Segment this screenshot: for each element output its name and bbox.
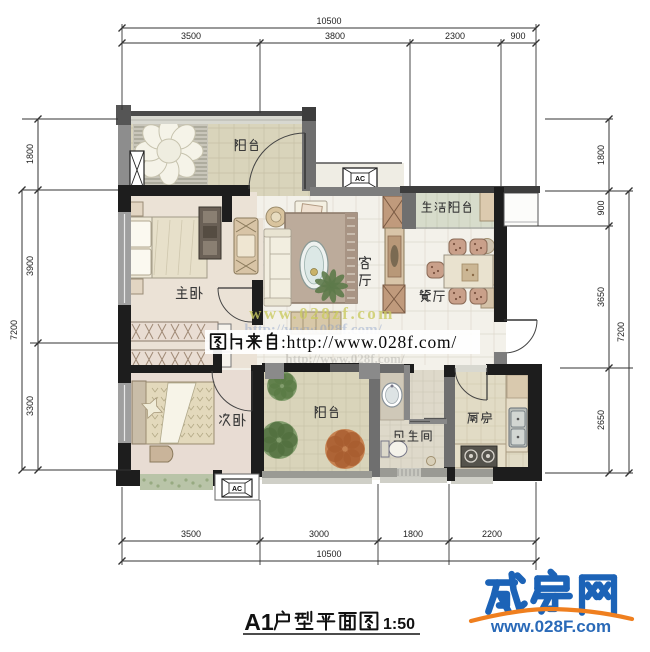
svg-text:2650: 2650 [596,410,606,430]
svg-text:3900: 3900 [25,256,35,276]
svg-text:900: 900 [510,31,525,41]
svg-text::http://www.028f.com/: :http://www.028f.com/ [281,332,457,352]
svg-text:www.028zf.com: www.028zf.com [249,304,395,323]
svg-text:2300: 2300 [445,31,465,41]
svg-text:3000: 3000 [309,529,329,539]
svg-text:1800: 1800 [403,529,423,539]
svg-text:7200: 7200 [616,322,626,342]
svg-text:7200: 7200 [9,320,19,340]
svg-text:AC: AC [232,486,242,493]
svg-text:3800: 3800 [325,31,345,41]
svg-text:1800: 1800 [596,145,606,165]
svg-text:A1: A1 [244,609,274,635]
svg-text:3500: 3500 [181,529,201,539]
svg-text:3300: 3300 [25,396,35,416]
svg-text:900: 900 [596,200,606,215]
svg-text:2200: 2200 [482,529,502,539]
svg-text:10500: 10500 [316,549,341,559]
svg-text:http://www.028f.com/: http://www.028f.com/ [285,351,405,366]
svg-text:10500: 10500 [316,16,341,26]
svg-text:3650: 3650 [596,287,606,307]
svg-text:www.028F.com: www.028F.com [490,617,611,636]
svg-text:3500: 3500 [181,31,201,41]
svg-text:AC: AC [355,176,365,183]
svg-text:1800: 1800 [25,144,35,164]
svg-text:1:50: 1:50 [383,616,415,633]
